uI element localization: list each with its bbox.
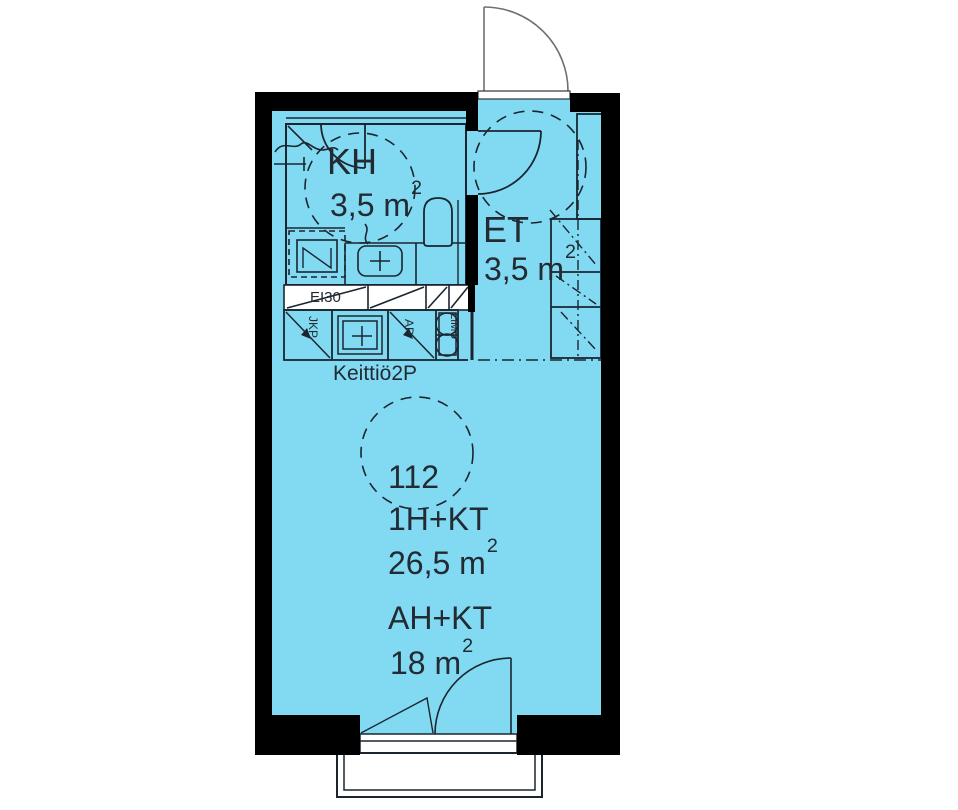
dishwasher-label: AP (403, 319, 415, 335)
wall-left (255, 92, 272, 755)
entry-area: 3,5 m2 (484, 253, 576, 285)
entrance-threshold (478, 91, 570, 99)
wall-top-left (255, 92, 478, 111)
bathroom-area-value: 3,5 m (330, 187, 410, 223)
wall-bathroom-entry-mid (466, 195, 478, 285)
apartment-type: 1H+KT (388, 503, 488, 535)
fridge-label: JKP (307, 316, 319, 338)
floorplan-canvas: KH 3,5 m2 ET 3,5 m2 EI30 JKP AP LIMU Kei… (0, 0, 958, 810)
wall-right (601, 93, 620, 755)
floorplan-linework (0, 0, 958, 810)
balcony-railing (337, 753, 542, 797)
window-sill (360, 734, 517, 753)
bathroom-area-superscript: 2 (411, 177, 422, 199)
living-area-value: 18 m (390, 645, 461, 681)
entrance-door-swing (484, 7, 568, 91)
wall-bottom-right (517, 715, 620, 755)
living-area-label: AH+KT (388, 602, 492, 634)
toilet-symbol (424, 198, 452, 246)
apartment-area: 26,5 m2 (388, 547, 498, 579)
apartment-area-superscript: 2 (487, 535, 498, 557)
wall-bottom-left (255, 715, 360, 755)
kitchen-label: Keittiö2P (333, 363, 417, 384)
bathroom-area: 3,5 m2 (330, 189, 422, 221)
entry-label: ET (483, 212, 529, 248)
living-area: 18 m2 (390, 647, 473, 679)
apartment-area-value: 26,5 m (388, 545, 486, 581)
bathroom-label: KH (327, 144, 377, 180)
fire-rating-label: EI30 (310, 290, 341, 305)
wall-bathroom-entry-top (466, 111, 478, 131)
stove-label: LIMU (448, 313, 459, 339)
entry-area-value: 3,5 m (484, 251, 564, 287)
apartment-number: 112 (388, 461, 439, 493)
living-area-superscript: 2 (462, 635, 473, 657)
wall-kitchen-entry (468, 285, 475, 312)
floor-area (272, 99, 601, 734)
entry-area-superscript: 2 (565, 241, 576, 263)
